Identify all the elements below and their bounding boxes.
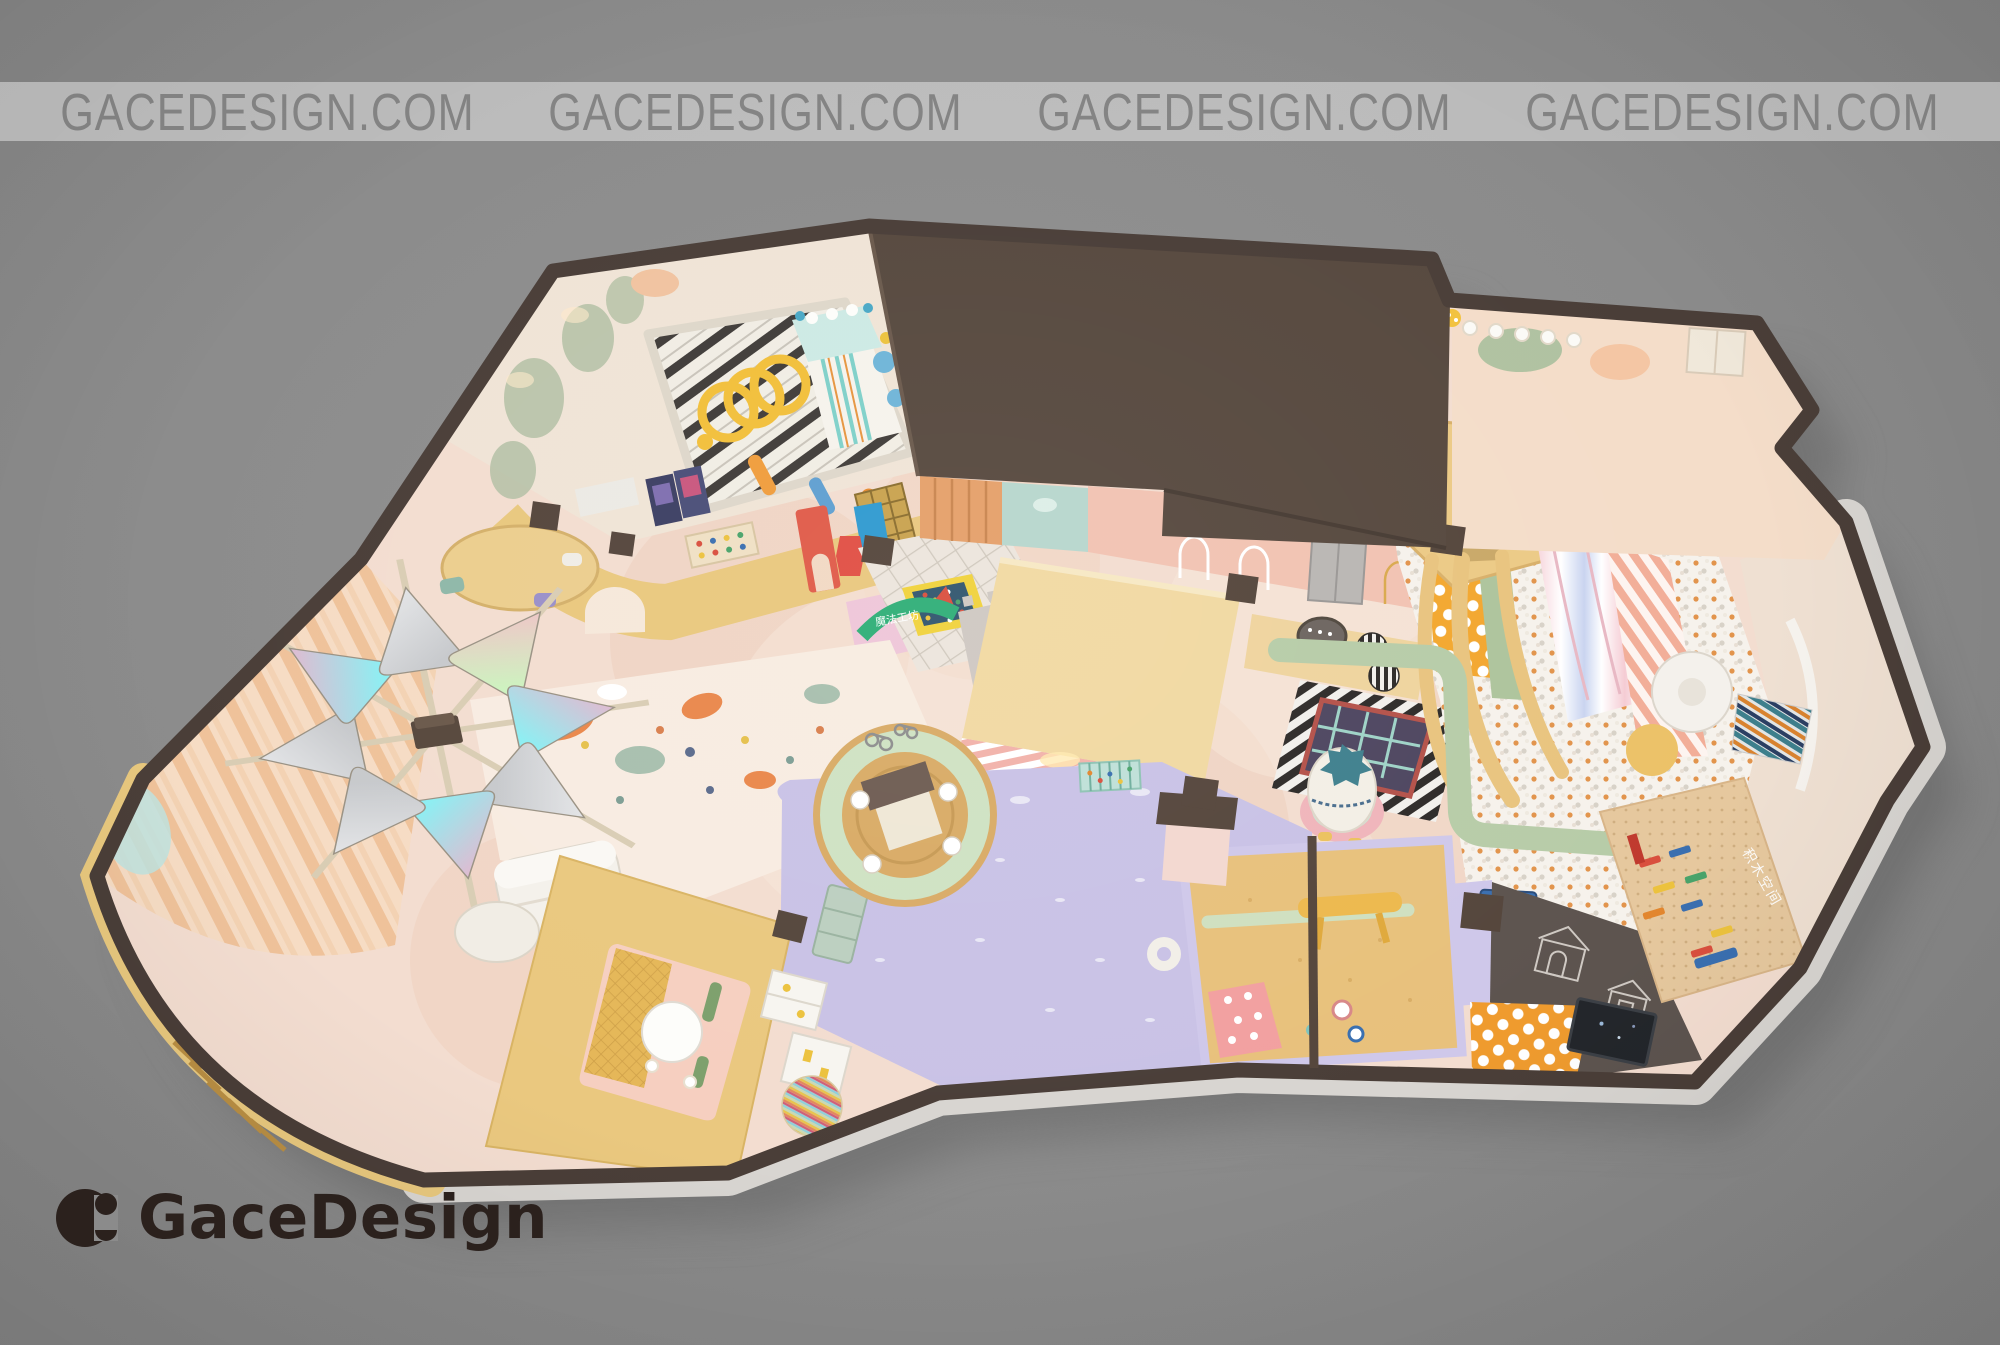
orange-tile-wall (920, 476, 1002, 545)
floorplan-render: 魔法工坊 (0, 0, 2000, 1345)
door (1308, 540, 1366, 604)
round-kiosk (813, 723, 997, 907)
watermark-band: GACEDESIGN.COM GACEDESIGN.COM GACEDESIGN… (0, 82, 2000, 141)
interior-wall (1312, 836, 1314, 1068)
logo-icon (56, 1185, 118, 1251)
pouf (455, 902, 539, 962)
mint-wall (1002, 482, 1088, 552)
red-hex-seat (836, 536, 864, 576)
yellow-platform (1626, 724, 1678, 776)
logo-text: GaceDesign (138, 1182, 548, 1253)
toy (1349, 1027, 1363, 1041)
watermark-text: GACEDESIGN.COM (549, 81, 963, 141)
brand-logo: GaceDesign (56, 1182, 548, 1253)
toy (1333, 1001, 1351, 1019)
watermark-text: GACEDESIGN.COM (1525, 81, 1939, 141)
kiosk-table (642, 1002, 702, 1062)
abacus-panel (1079, 760, 1140, 791)
foam-ball (697, 434, 713, 450)
oval-table (439, 526, 598, 610)
page: { "watermark": { "items": ["GACEDESIGN.C… (0, 0, 2000, 1345)
watermark-text: GACEDESIGN.COM (1037, 81, 1451, 141)
watermark-text: GACEDESIGN.COM (61, 81, 475, 141)
